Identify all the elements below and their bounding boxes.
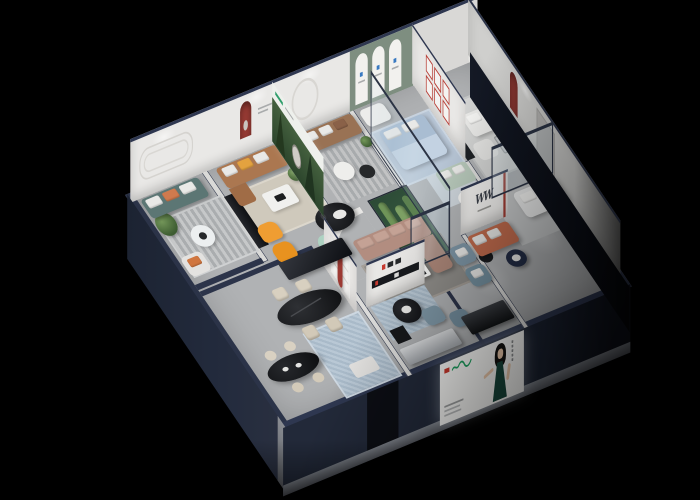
wall-molding-inner (144, 137, 189, 174)
side-table-navy (502, 247, 531, 270)
woman-arm (506, 363, 511, 380)
bar-stool-cream (282, 340, 298, 353)
table-tray-white (400, 304, 414, 314)
bar-stool-cream (290, 381, 306, 394)
table-veining (290, 298, 321, 318)
red-arch-niche (240, 99, 251, 139)
arch-text-line (358, 79, 365, 83)
niche-sculpture (243, 119, 247, 131)
woman-dress-green (491, 358, 508, 403)
cabinet-black-glossy (278, 237, 353, 280)
arch-text-line (392, 65, 399, 69)
billboard-logo-red-mark (444, 367, 449, 374)
chair-pillow (454, 247, 469, 258)
arch-text-line (375, 72, 382, 76)
showroom-render-canvas: WW (0, 0, 700, 500)
blue-logo-mark (394, 58, 397, 63)
vertical-text-bar (512, 340, 514, 362)
sofa-cushion (486, 227, 503, 239)
bench-black-long (460, 300, 515, 336)
sofa-cushion (471, 233, 488, 245)
blue-logo-mark (360, 72, 363, 77)
blue-logo-mark (377, 65, 380, 70)
armchair-steel-blue (463, 262, 494, 288)
chair-pillow (470, 268, 485, 279)
plate (281, 366, 289, 372)
dining-chair-cream (271, 286, 291, 302)
woman-arm (483, 367, 493, 379)
bar-stool-cream (310, 371, 326, 384)
plate (294, 362, 302, 368)
billboard-woman-figure (485, 336, 519, 406)
table-tray-white (510, 253, 522, 262)
billboard-logo-script (451, 353, 476, 376)
